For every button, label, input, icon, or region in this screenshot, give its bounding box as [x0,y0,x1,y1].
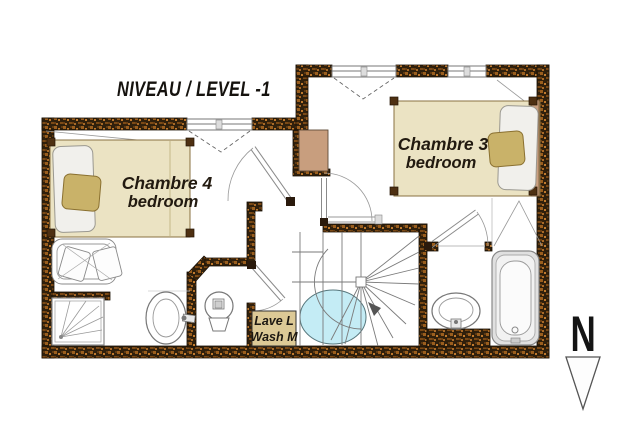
laundry-box: Lave L Wash M [251,311,299,346]
window-swing-dashes [334,78,394,99]
chair-sketch-icon [52,239,123,284]
pillow-tan [61,173,101,211]
wall-segment [293,130,299,175]
wall-segment [485,242,492,251]
wall-segment [187,272,196,347]
wall-segment [323,224,427,232]
wall-segment [42,346,549,358]
wall-segment [205,258,253,266]
plan-title: NIVEAU / LEVEL -1 [117,77,271,100]
wall-segment [247,208,255,266]
bathtub-icon [492,251,539,345]
wall-segment [296,65,332,77]
window-chambre4 [187,119,252,152]
wall-segment [42,118,187,130]
north-label: N [570,307,595,363]
north-compass: N [566,307,600,409]
chambre3-sublabel: bedroom [406,154,477,172]
window-chambre3-left [332,66,396,99]
laundry-label-fr: Lave L [254,314,294,328]
north-arrow-icon [566,357,600,409]
washbasin-right-icon [432,293,480,329]
wall-segment [247,202,262,211]
floorplan-drawing: NIVEAU / LEVEL -1 [0,0,640,427]
chambre4-room: Chambre 4 bedroom [46,131,212,284]
door-chambre4 [228,147,295,206]
chambre3-label: Chambre 3 [398,134,489,154]
door-chambre3 [320,173,382,226]
toilet-icon [205,292,233,331]
vanity-counter [427,329,490,347]
wardrobe-lines [492,198,542,247]
floorplan-page: NIVEAU / LEVEL -1 [0,0,640,427]
staircase-icon [292,232,419,346]
laundry-label-en: Wash M [251,330,299,344]
chambre3-room: Chambre 3 bedroom [390,80,542,247]
chambre4-label: Chambre 4 [122,173,213,193]
pillow-tan [488,130,526,167]
wall-segment [396,65,448,77]
chambre4-sublabel: bedroom [128,193,199,211]
shower-icon [52,298,104,345]
plan-title-group: NIVEAU / LEVEL -1 [117,77,271,100]
duct-box [299,130,328,171]
window-chambre3-right [448,66,486,77]
window-swing-dashes [189,131,250,152]
